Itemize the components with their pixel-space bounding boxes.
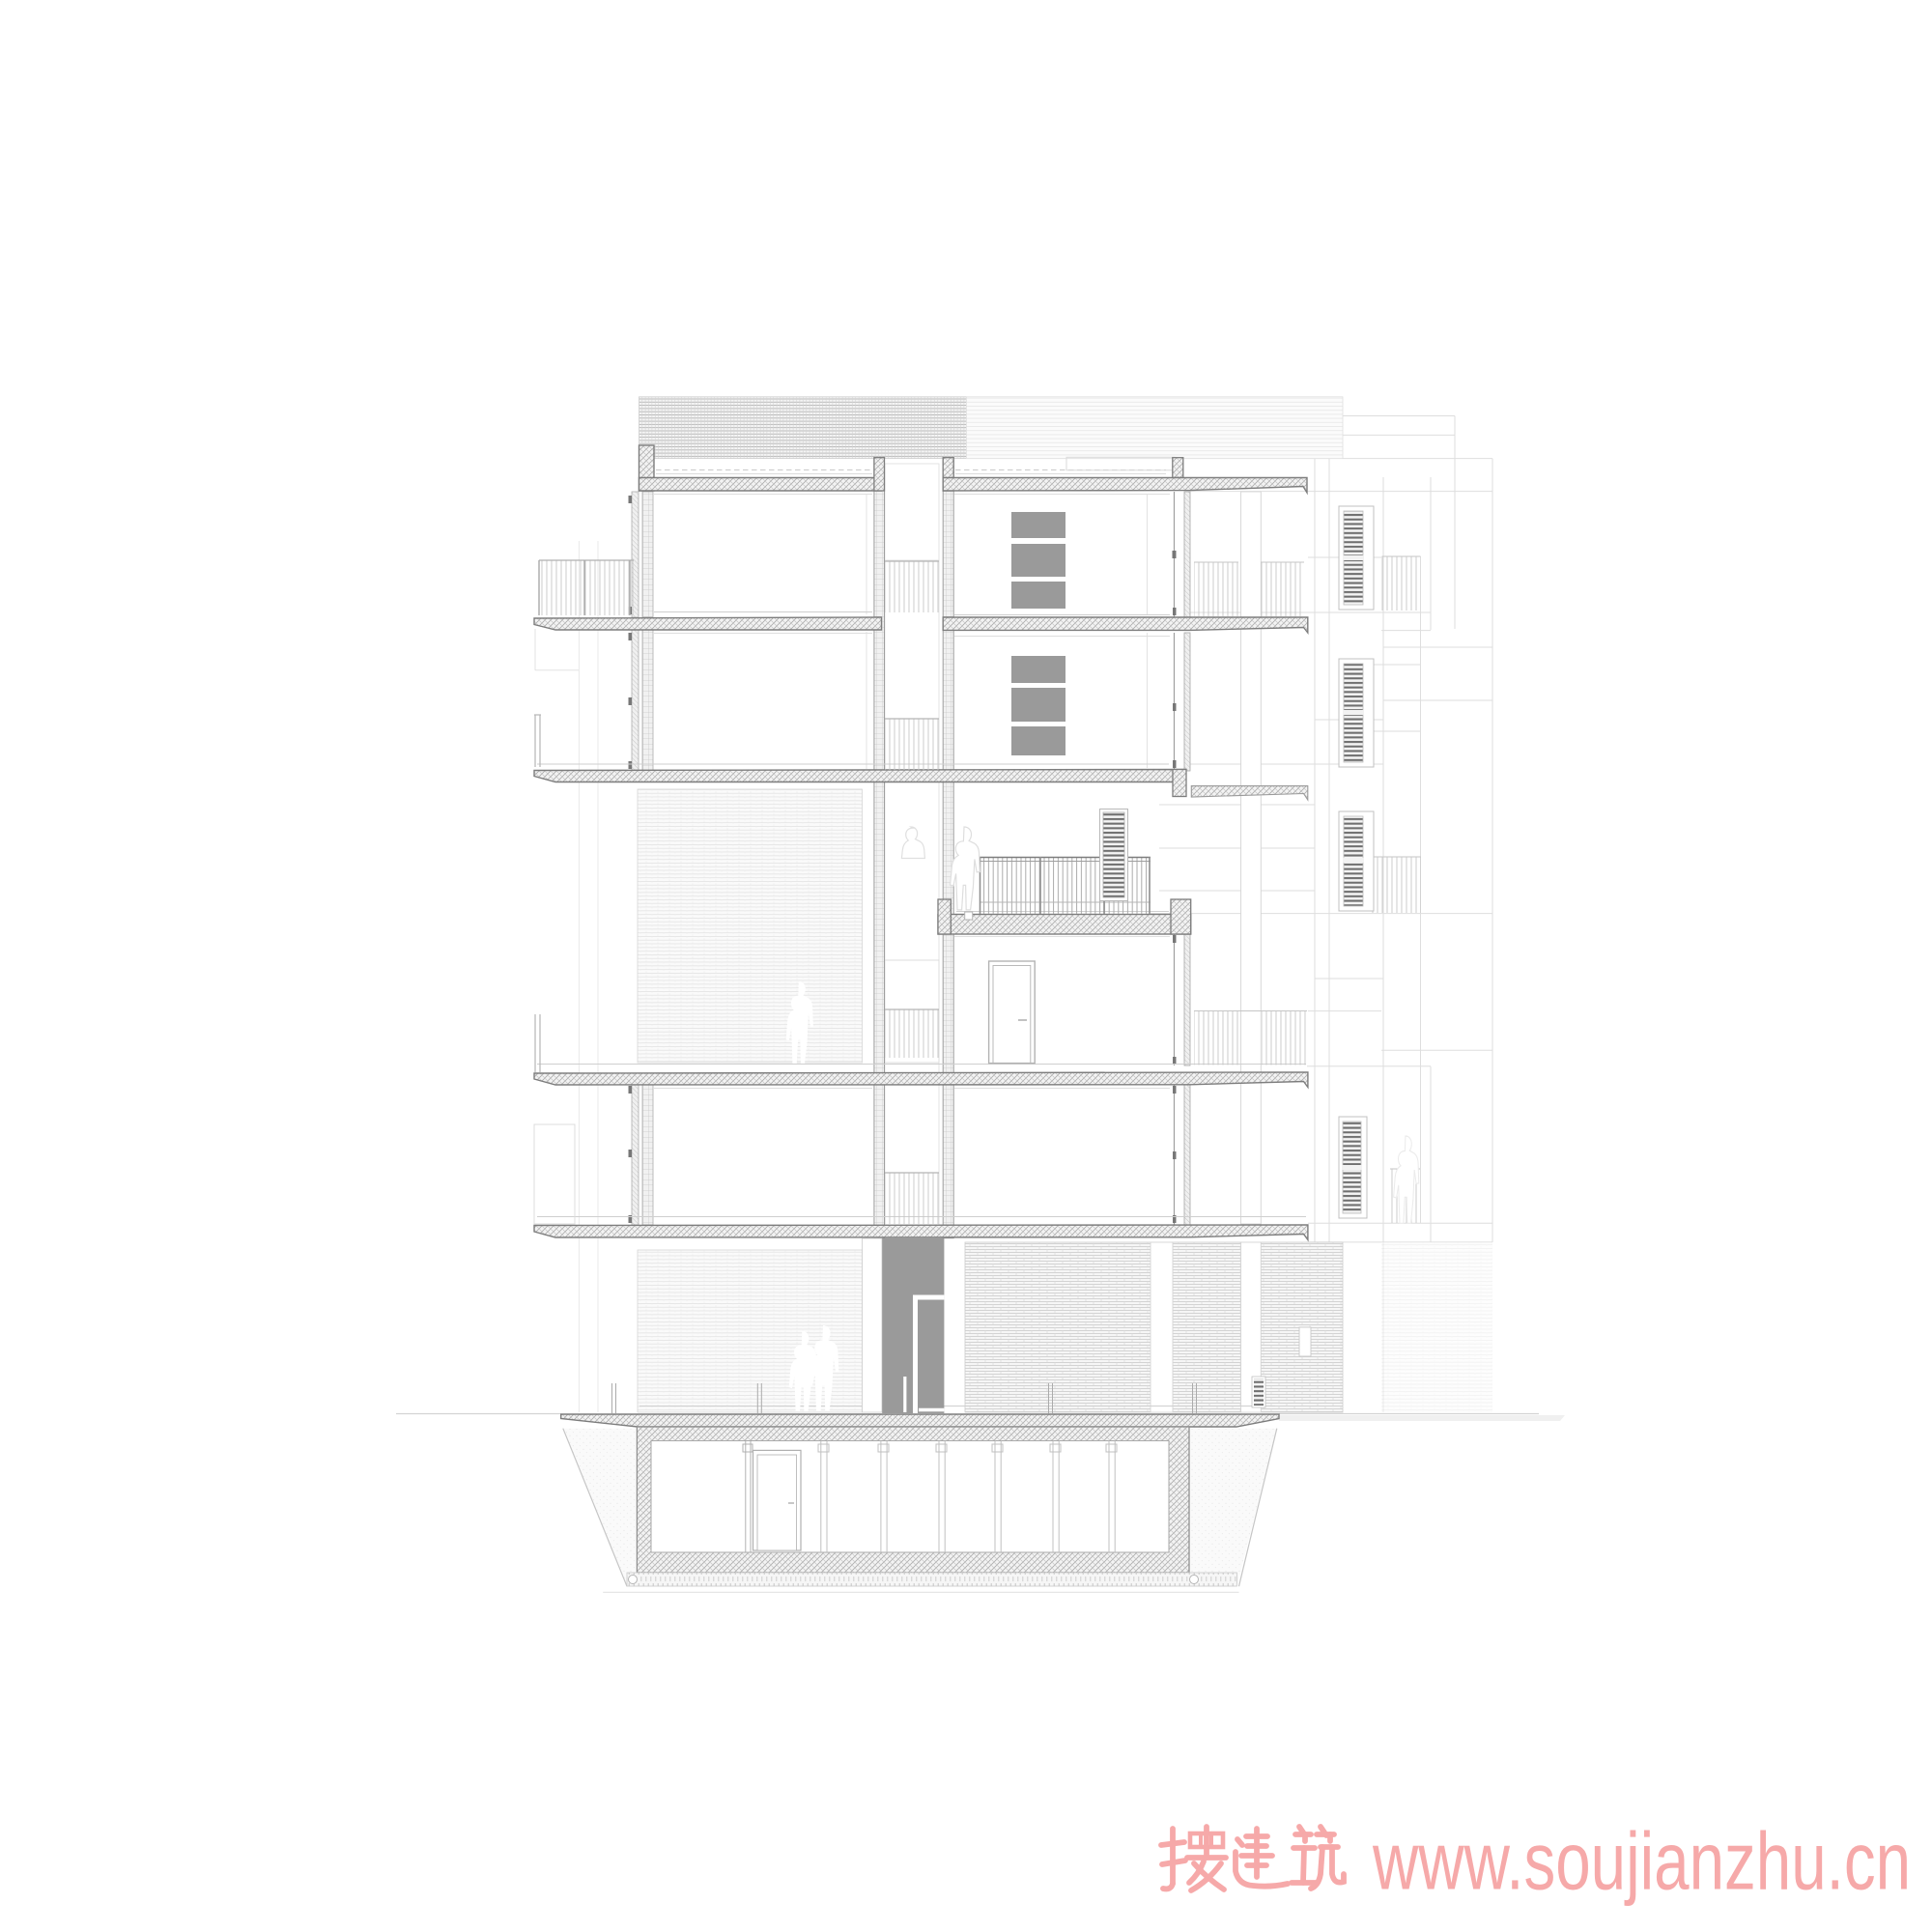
svg-text:www.soujianzhu.cn: www.soujianzhu.cn <box>1372 1816 1911 1907</box>
